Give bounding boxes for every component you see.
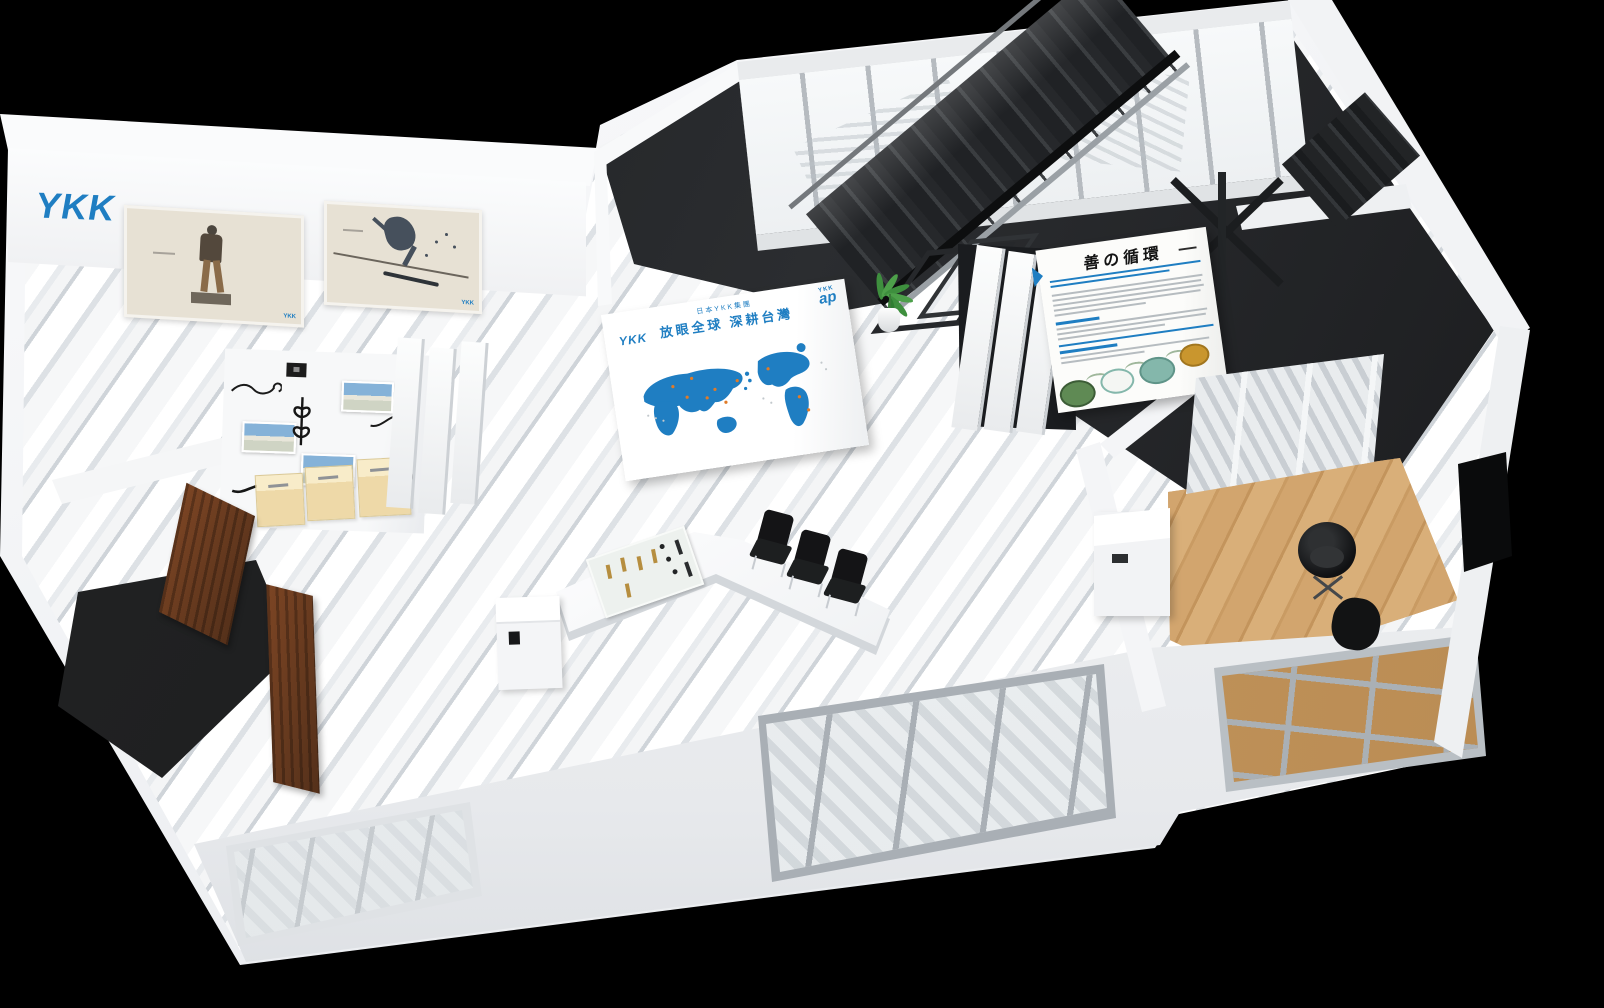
sample-bar	[684, 561, 693, 576]
sample-handle	[606, 564, 613, 579]
statue-plinth	[191, 292, 231, 305]
poster-ykk-logo: YKK	[461, 300, 474, 307]
world-map-graphic	[622, 333, 849, 464]
sample-handle	[651, 549, 658, 564]
poster-caption-line	[343, 229, 363, 232]
sample-handle	[625, 583, 632, 598]
display-pedestal	[495, 596, 562, 690]
showroom-floorplan-render: YKK YKK YKK	[0, 0, 1604, 1008]
chair-seat	[1310, 546, 1344, 568]
sample-knob	[665, 556, 671, 562]
ink-splatter	[435, 240, 438, 243]
poster-ykk-logo: YKK	[283, 313, 296, 320]
sample-cabinet	[305, 465, 356, 521]
office-chair	[1298, 522, 1358, 600]
podium-top	[1094, 508, 1170, 546]
world-map-wall: YKK 日本YKK集團 放眼全球 深耕台灣 YKK ap	[601, 279, 869, 482]
entrance-podium	[1094, 512, 1170, 616]
poster-caption-line	[153, 252, 175, 255]
cycle-node-gold	[1178, 342, 1211, 369]
sample-handle	[637, 556, 644, 571]
fleur-ornament	[288, 395, 316, 448]
poster-skater: YKK	[324, 201, 482, 314]
text-line	[1057, 313, 1206, 336]
ink-splatter	[453, 245, 456, 248]
ink-splatter	[445, 233, 448, 236]
stair-post	[1218, 172, 1226, 300]
skateboard	[383, 271, 439, 287]
potted-plant	[866, 264, 918, 350]
sample-knob	[672, 569, 678, 575]
plant-pot	[878, 308, 900, 332]
sample-handle	[620, 557, 627, 572]
podium-slot	[1112, 554, 1128, 563]
poster-statue: YKK	[124, 205, 304, 328]
chair-base	[1310, 578, 1346, 598]
wooden-door	[266, 584, 319, 793]
pedestal-top	[495, 596, 560, 624]
small-black-frame	[286, 363, 306, 378]
sample-bar	[674, 539, 683, 554]
scroll-ornament	[229, 381, 282, 399]
sample-knob	[659, 543, 665, 549]
sample-cabinet	[255, 473, 306, 527]
pedestal-logo-mark	[509, 631, 520, 644]
statue-leg	[213, 260, 224, 293]
ykk-wall-logo: YKK	[36, 184, 116, 229]
statue-leg	[200, 259, 210, 292]
ink-splatter	[425, 254, 428, 257]
